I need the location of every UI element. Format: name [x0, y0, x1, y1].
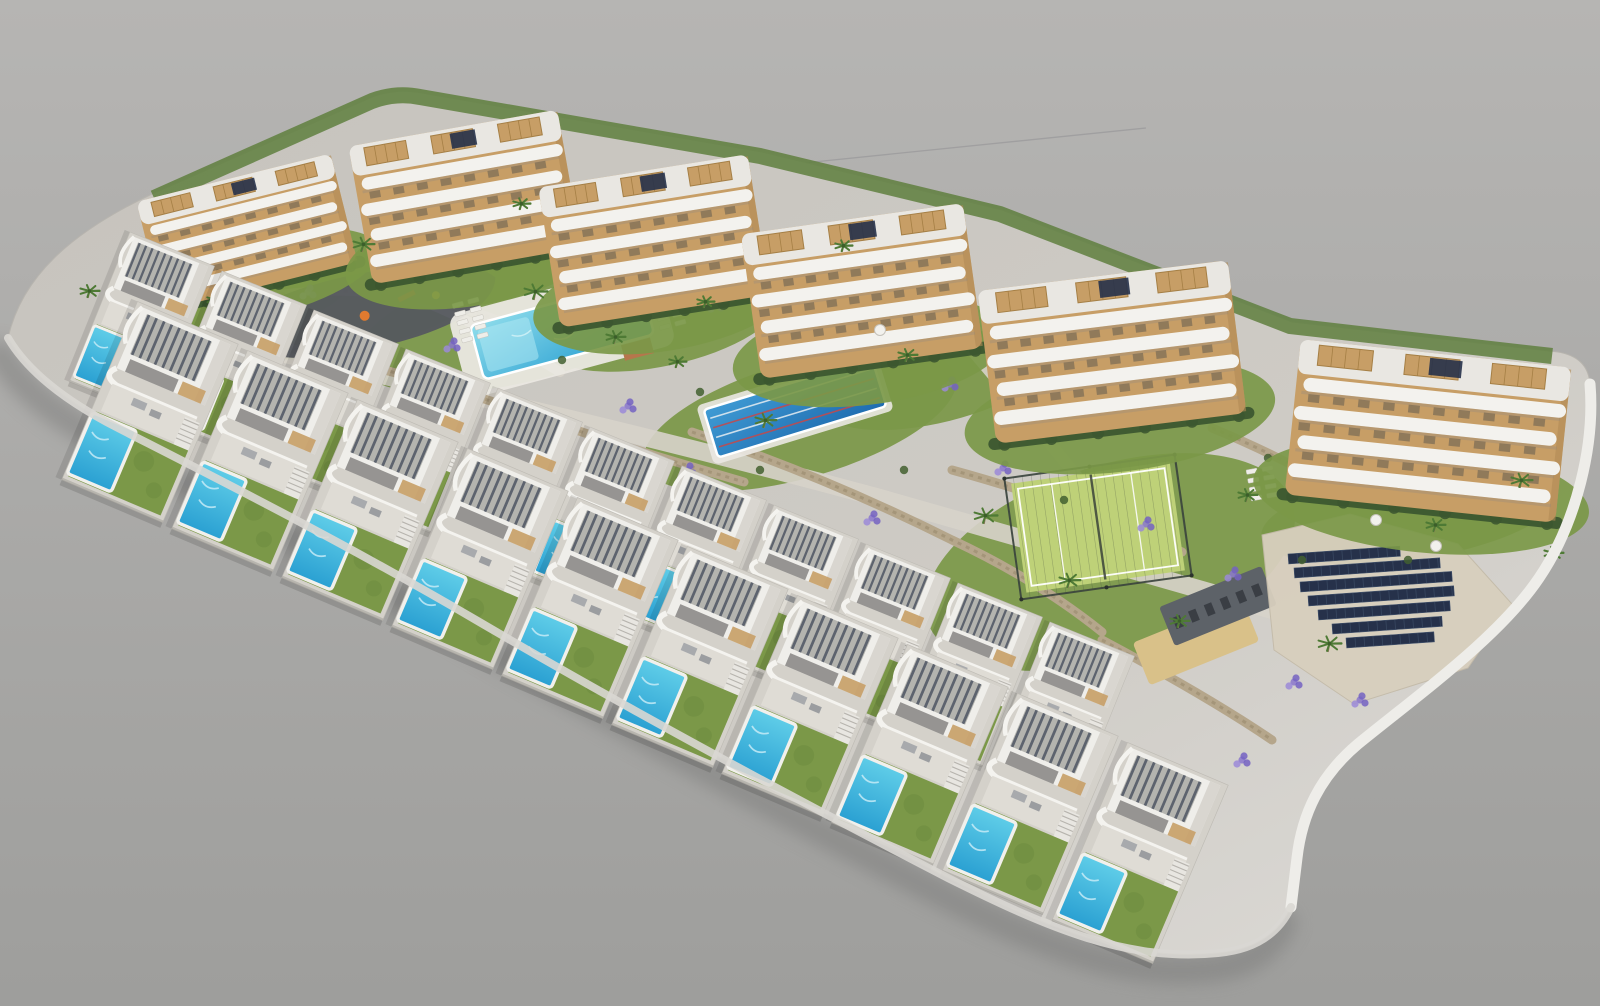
window-opening [1458, 410, 1470, 419]
window-opening [895, 262, 906, 271]
palm-crown [704, 300, 708, 304]
window-opening [894, 290, 905, 299]
lavender-clump [870, 510, 877, 517]
window-opening [939, 283, 950, 292]
window-opening [873, 265, 884, 274]
window-opening [858, 322, 869, 331]
window-opening [1156, 350, 1167, 359]
window-opening [1142, 380, 1153, 389]
window-opening [1377, 459, 1389, 468]
window-opening [835, 325, 846, 334]
window-opening [1433, 407, 1445, 416]
window-opening [805, 275, 816, 284]
window-opening [1323, 425, 1335, 434]
lavender-clump [1295, 681, 1302, 688]
window-opening [994, 370, 1005, 379]
window-opening [790, 331, 801, 340]
window-opening [1524, 446, 1536, 455]
window-opening [1333, 397, 1345, 406]
window-opening [925, 312, 936, 321]
window-opening [1064, 361, 1075, 370]
palm-crown [764, 419, 768, 423]
lavender-clump [1231, 566, 1238, 573]
lavender-clump [1292, 674, 1299, 681]
window-opening [1202, 344, 1213, 353]
lavender-clump [453, 344, 460, 351]
palm-crown [88, 289, 92, 293]
lavender-clump [1240, 752, 1247, 759]
window-opening [1179, 347, 1190, 356]
shrub [900, 466, 908, 474]
window-opening [1373, 430, 1385, 439]
lavender-clump [619, 406, 626, 413]
window-opening [1427, 465, 1439, 474]
window-opening [1327, 454, 1339, 463]
window-opening [1112, 327, 1123, 336]
palm-crown [842, 244, 846, 248]
lavender-clump [1234, 573, 1241, 580]
rooftop-solar-panel [1428, 358, 1462, 378]
lavender-clump [1361, 699, 1368, 706]
window-opening [1017, 367, 1028, 376]
window-opening [1452, 467, 1464, 476]
window-opening [1308, 394, 1320, 403]
lavender-clump [1351, 700, 1358, 707]
palm-crown [906, 353, 910, 357]
window-opening [781, 305, 792, 314]
window-opening [1089, 329, 1100, 338]
window-opening [826, 299, 837, 308]
palm-crown [676, 360, 680, 364]
window-opening [1474, 441, 1486, 450]
palm-crown [1246, 493, 1250, 497]
shrub [1060, 496, 1068, 504]
window-opening [850, 268, 861, 277]
window-opening [1398, 433, 1410, 442]
window-opening [1040, 364, 1051, 373]
lavender-clump [863, 518, 870, 525]
window-opening [1483, 413, 1495, 422]
window-opening [1533, 418, 1545, 427]
lavender-clump [1358, 692, 1365, 699]
palm-crown [1068, 579, 1072, 583]
lavender-clump [1224, 574, 1231, 581]
palm-crown [984, 514, 988, 518]
window-opening [940, 256, 951, 265]
window-opening [804, 302, 815, 311]
lavender-clump [1137, 524, 1144, 531]
window-opening [916, 286, 927, 295]
lavender-clump [1004, 467, 1011, 474]
palm-crown [534, 290, 538, 294]
window-opening [1096, 386, 1107, 395]
shrub [1298, 556, 1306, 564]
palm-crown [362, 243, 366, 247]
window-opening [1352, 457, 1364, 466]
palm-crown [1434, 523, 1438, 527]
lavender-clump [873, 517, 880, 524]
parasol [875, 325, 886, 336]
lavender-clump [629, 405, 636, 412]
window-opening [948, 309, 959, 318]
window-opening [1004, 397, 1015, 406]
window-opening [1423, 435, 1435, 444]
window-opening [1302, 452, 1314, 461]
window-opening [1408, 405, 1420, 414]
window-opening [1298, 422, 1310, 431]
palm-crown [1328, 642, 1332, 646]
window-opening [1204, 315, 1215, 324]
parasol [1371, 515, 1382, 526]
shrub [696, 388, 704, 396]
window-opening [1508, 415, 1520, 424]
window-opening [1073, 389, 1084, 398]
window-opening [1043, 335, 1054, 344]
window-opening [1119, 383, 1130, 392]
window-opening [1133, 353, 1144, 362]
window-opening [1402, 462, 1414, 471]
window-opening [1066, 332, 1077, 341]
lavender-clump [1147, 523, 1154, 530]
lavender-clump [1233, 760, 1240, 767]
window-opening [903, 316, 914, 325]
lavender-clump [1144, 516, 1151, 523]
window-opening [768, 334, 779, 343]
window-opening [1477, 470, 1489, 479]
window-opening [849, 296, 860, 305]
palm-crown [614, 335, 618, 339]
window-opening [1211, 372, 1222, 381]
window-opening [1135, 324, 1146, 333]
window-opening [1348, 427, 1360, 436]
palm-crown [1520, 479, 1524, 483]
window-opening [918, 259, 929, 268]
window-opening [1087, 359, 1098, 368]
window-opening [1358, 399, 1370, 408]
parasol [1431, 541, 1442, 552]
window-opening [828, 272, 839, 281]
window-opening [759, 308, 770, 317]
window-opening [1165, 378, 1176, 387]
window-opening [871, 293, 882, 302]
window-opening [1020, 338, 1031, 347]
window-opening [783, 278, 794, 287]
shrub [1404, 556, 1412, 564]
aerial-site-render [0, 0, 1600, 1006]
window-opening [1027, 395, 1038, 404]
window-opening [1050, 392, 1061, 401]
lavender-clump [1285, 682, 1292, 689]
window-opening [1383, 402, 1395, 411]
lavender-clump [1243, 759, 1250, 766]
window-opening [1449, 438, 1461, 447]
lavender-clump [450, 337, 457, 344]
lavender-clump [626, 398, 633, 405]
window-opening [813, 328, 824, 337]
window-opening [997, 341, 1008, 350]
palm-crown [1178, 619, 1182, 623]
window-opening [1188, 375, 1199, 384]
lavender-clump [994, 468, 1001, 475]
shrub [558, 356, 566, 364]
lavender-clump [443, 345, 450, 352]
window-opening [1158, 321, 1169, 330]
palm-crown [520, 202, 524, 206]
window-opening [1499, 443, 1511, 452]
site-plan-svg [0, 0, 1600, 1006]
window-opening [1110, 356, 1121, 365]
shrub [756, 466, 764, 474]
window-opening [761, 281, 772, 290]
window-opening [1181, 318, 1192, 327]
padel-court [1002, 452, 1194, 601]
